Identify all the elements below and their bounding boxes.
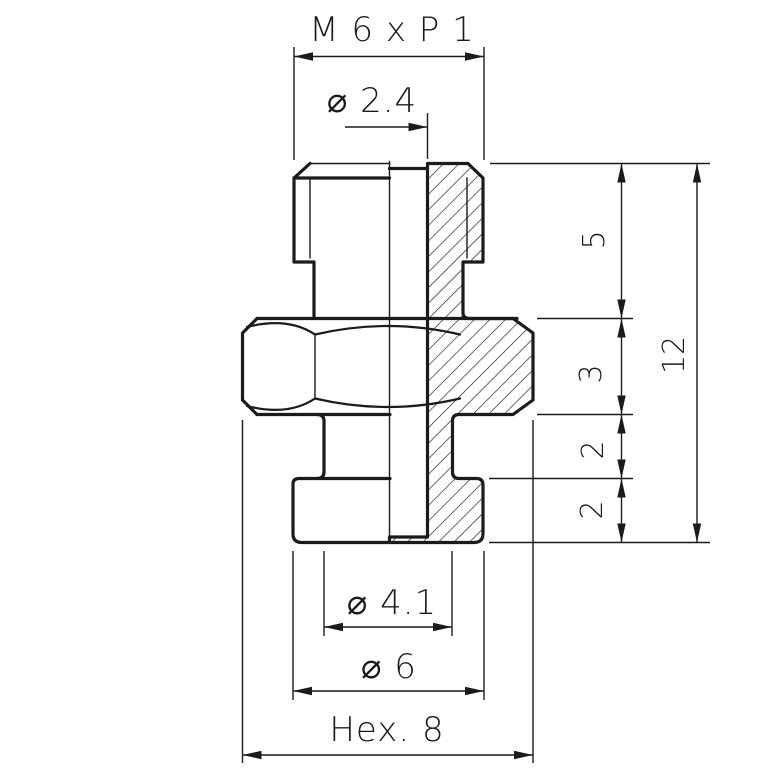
hex-width-label: Hex. 8: [329, 710, 444, 750]
neck-left-wall: [317, 415, 324, 479]
hatch-region: [390, 164, 534, 543]
hex-left-corner-edges: [243, 319, 258, 415]
thread-length-label: 5: [577, 230, 612, 249]
hole-diameter-label: ⌀ 2.4: [327, 81, 417, 121]
outline-thread-left: [294, 164, 314, 318]
part-half-section-view: [243, 162, 534, 543]
engineering-drawing-canvas: M 6 x P 1 ⌀ 2.4 5 3 2 2 12 ⌀ 4.1 ⌀ 6 Hex…: [0, 0, 776, 776]
hex-thickness-label: 3: [574, 364, 609, 383]
flange-left-and-bottom: [293, 479, 390, 543]
flange-diameter-label: ⌀ 6: [361, 647, 417, 687]
flange-thickness-label: 2: [575, 500, 610, 519]
thread-spec-label: M 6 x P 1: [309, 10, 474, 50]
section-drawing-svg: M 6 x P 1 ⌀ 2.4 5 3 2 2 12 ⌀ 4.1 ⌀ 6 Hex…: [0, 0, 776, 776]
neck-length-label: 2: [576, 440, 611, 459]
overall-length-label: 12: [657, 336, 692, 374]
neck-diameter-label: ⌀ 4.1: [347, 583, 437, 623]
